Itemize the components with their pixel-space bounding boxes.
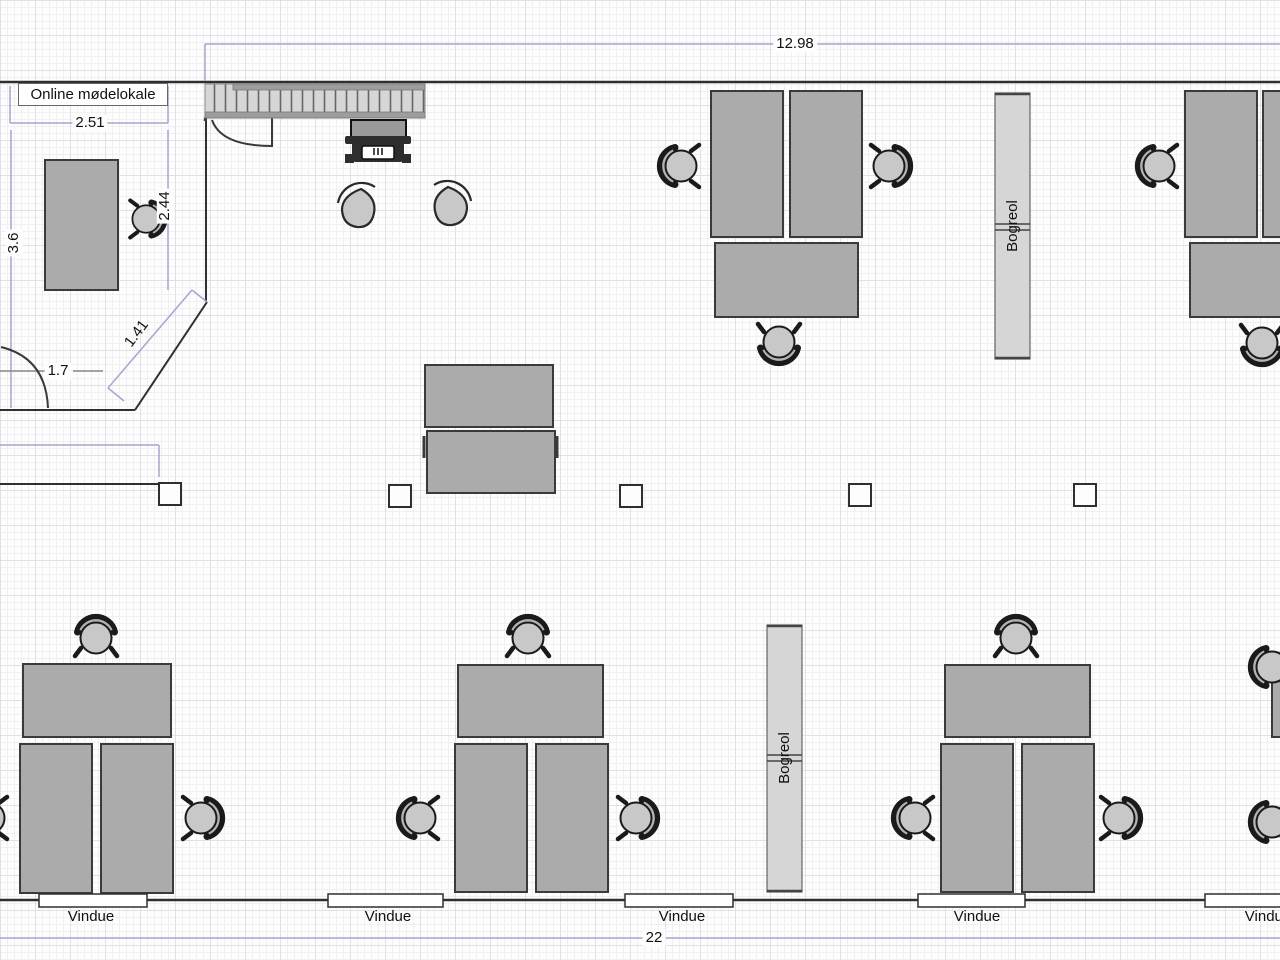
office-chair[interactable] [1251, 801, 1280, 843]
office-chair[interactable] [618, 797, 657, 839]
dimension-door-clearance: 1.7 [45, 363, 72, 380]
desk[interactable] [715, 243, 858, 317]
desk[interactable] [945, 665, 1090, 737]
window[interactable] [1205, 894, 1280, 907]
window[interactable] [39, 894, 147, 907]
desk[interactable] [425, 365, 553, 427]
desk[interactable] [536, 744, 608, 892]
doors [1, 98, 272, 408]
office-chair[interactable] [894, 797, 933, 839]
lounge-chair[interactable] [434, 181, 471, 225]
office-chair[interactable] [1101, 797, 1140, 839]
office-chair[interactable] [758, 324, 800, 363]
window[interactable] [918, 894, 1025, 907]
desk[interactable] [45, 160, 118, 290]
column[interactable] [389, 485, 411, 507]
columns [159, 483, 1096, 507]
window-label: Vindue [656, 909, 708, 926]
dimension-room-height-right: 2.44 [157, 188, 174, 223]
desk[interactable] [20, 744, 92, 893]
dimension-room-height-left: 3.6 [6, 230, 23, 257]
office-chair[interactable] [75, 617, 117, 656]
office-chair[interactable] [507, 617, 549, 656]
dimension-top-width: 12.98 [773, 36, 817, 53]
window-label: Vindue [362, 909, 414, 926]
floor-plan-canvas: Online mødelokale 12.98 22 2.51 3.6 2.44… [0, 0, 1280, 960]
desk[interactable] [458, 665, 603, 737]
desk[interactable] [101, 744, 173, 893]
bookshelf-label: Bogreol [1005, 197, 1022, 255]
dimension-bottom-width: 22 [643, 930, 666, 947]
desk[interactable] [1263, 91, 1280, 237]
column[interactable] [159, 483, 181, 505]
hatched-wall-section[interactable] [205, 84, 425, 118]
office-chair[interactable] [1241, 325, 1280, 364]
window[interactable] [625, 894, 733, 907]
door-arc-hall[interactable] [212, 120, 272, 146]
office-chair[interactable] [871, 145, 910, 187]
lounge-chair[interactable] [338, 183, 375, 227]
door-arc-meeting-room[interactable] [1, 347, 48, 408]
column[interactable] [1074, 484, 1096, 506]
window[interactable] [328, 894, 443, 907]
floor-plan-drawing [0, 0, 1280, 960]
office-chair[interactable] [399, 797, 438, 839]
window-label: Vindue [951, 909, 1003, 926]
column[interactable] [620, 485, 642, 507]
office-chair[interactable] [660, 145, 699, 187]
office-chair[interactable] [1138, 145, 1177, 187]
desk[interactable] [1185, 91, 1257, 237]
window-label: Vindue [65, 909, 117, 926]
window-label: Vindue [1242, 909, 1280, 926]
desk[interactable] [790, 91, 862, 237]
desk[interactable] [941, 744, 1013, 892]
office-chair[interactable] [0, 797, 7, 839]
room-label-meeting-room[interactable]: Online mødelokale [18, 83, 168, 106]
printer-icon[interactable] [345, 120, 411, 163]
office-chair[interactable] [183, 797, 222, 839]
desk[interactable] [23, 664, 171, 737]
office-chair[interactable] [1251, 646, 1280, 688]
desk[interactable] [1190, 243, 1280, 317]
desk[interactable] [455, 744, 527, 892]
bookshelf-label: Bogreol [777, 729, 794, 787]
desk[interactable] [711, 91, 783, 237]
office-chair[interactable] [995, 617, 1037, 656]
desk[interactable] [427, 431, 555, 493]
column[interactable] [849, 484, 871, 506]
dimension-room-width: 2.51 [72, 115, 107, 132]
desk[interactable] [1022, 744, 1094, 892]
